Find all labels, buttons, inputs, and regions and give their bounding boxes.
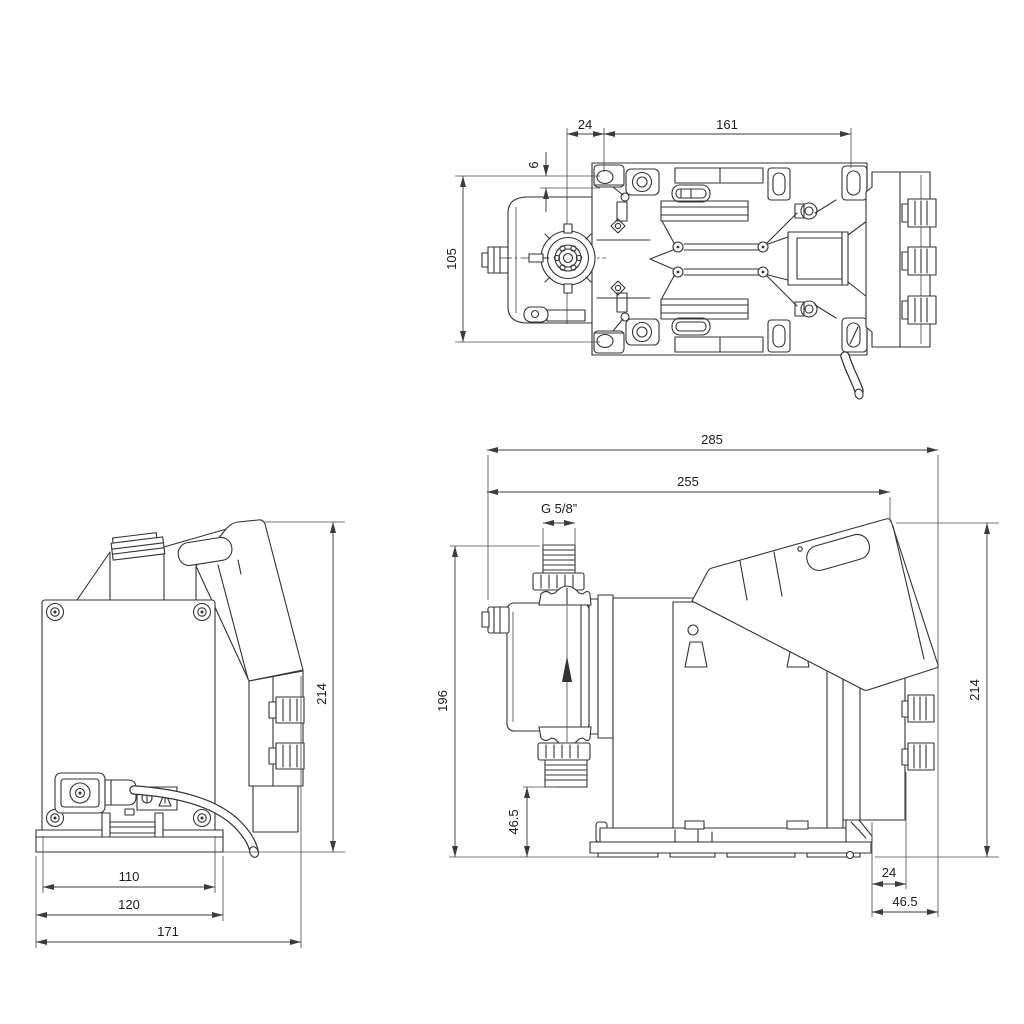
- dim-label-24-side: 24: [882, 865, 896, 880]
- discharge-fitting-side: [533, 545, 591, 605]
- power-cable-top: [845, 356, 864, 400]
- head-flange-side: [589, 595, 613, 738]
- dim-label-171: 171: [157, 924, 179, 939]
- dim-label-thread: G 5/8”: [541, 501, 577, 516]
- dim-label-161: 161: [716, 117, 738, 132]
- dim-label-105: 105: [444, 248, 459, 270]
- drawing-sheet: 24 161 6 105: [0, 0, 1024, 1024]
- connection-knobs-side: [902, 695, 934, 770]
- dimensions-top: 24 161 6 105: [444, 117, 851, 342]
- dim-label-46-5-bottom: 46.5: [506, 809, 521, 834]
- bleed-valve-knob: [488, 607, 509, 633]
- suction-fitting-side: [538, 727, 591, 787]
- dim-label-214-rear: 214: [314, 683, 329, 705]
- dim-label-196: 196: [435, 690, 450, 712]
- dim-label-110: 110: [119, 869, 140, 884]
- suction-fitting-top: [482, 247, 508, 273]
- dim-label-120: 120: [118, 897, 140, 912]
- dosing-head-side: [482, 603, 589, 731]
- dim-label-6: 6: [526, 161, 541, 168]
- technical-drawing: 24 161 6 105: [0, 0, 1024, 1024]
- connection-knobs-top: [902, 199, 936, 324]
- mounting-plate-top: [592, 163, 867, 355]
- view-top: 24 161 6 105: [444, 117, 936, 400]
- view-side: 285 255 G 5/8” 196 46.5 214 24 46.5: [435, 432, 999, 917]
- dim-label-285: 285: [701, 432, 723, 447]
- view-rear: 214 110 120 171: [36, 520, 345, 948]
- dim-label-214-side: 214: [967, 679, 982, 701]
- dim-label-24-top: 24: [578, 117, 592, 132]
- dim-label-46-5-rear: 46.5: [892, 894, 917, 909]
- dim-label-255: 255: [677, 474, 699, 489]
